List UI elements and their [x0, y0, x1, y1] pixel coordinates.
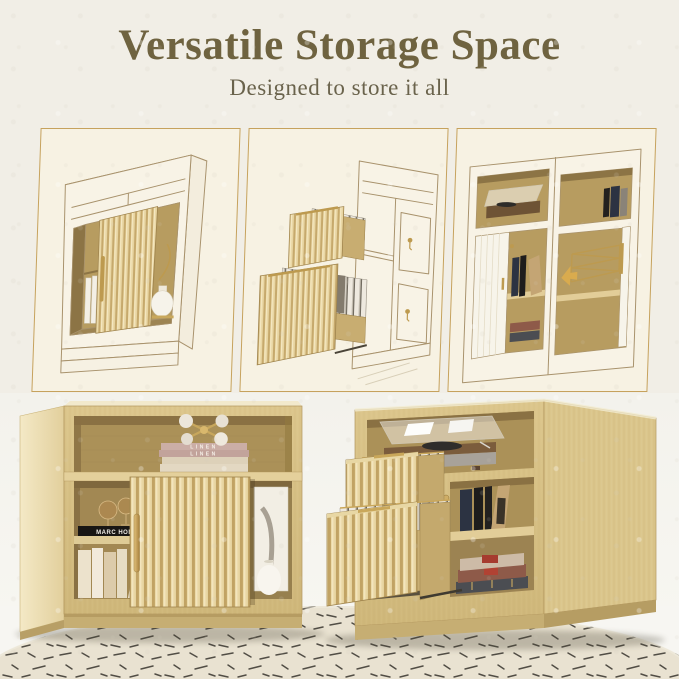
- illustration-sliding-door-cabinet: [32, 129, 239, 391]
- left-unit: [471, 169, 549, 359]
- page-subtitle: Designed to store it all: [0, 75, 679, 101]
- top-drawer: [288, 207, 365, 268]
- right-cabinet: [327, 400, 656, 640]
- book-stack: LINEN LINEN: [159, 443, 249, 472]
- book-spine-label: LINEN: [190, 445, 218, 451]
- top-open-shelf: LINEN LINEN: [74, 414, 292, 472]
- cabinet-outline: [352, 161, 439, 385]
- product-infographic: Versatile Storage Space Designed to stor…: [0, 0, 679, 679]
- page-title: Versatile Storage Space: [0, 22, 679, 69]
- book-spine-label: LINEN: [190, 452, 218, 458]
- left-cabinet-photo: LINEN LINEN: [18, 390, 320, 640]
- feature-panel-sliding-door: [31, 128, 240, 392]
- cabinet-top: [64, 401, 302, 406]
- fluted-sliding-door: [96, 207, 158, 334]
- left-cabinet: LINEN LINEN: [20, 401, 302, 640]
- door-handle: [134, 514, 140, 572]
- feature-panels: [36, 128, 652, 392]
- cabinet-side-panel: [20, 406, 64, 632]
- illustration-file-drawers: [240, 129, 447, 391]
- right-cabinet-photo: [322, 386, 670, 644]
- display-book-label: MARC HOM: [96, 530, 134, 536]
- bottom-drawer-open: [327, 500, 462, 606]
- feature-panel-file-drawers: [239, 128, 448, 392]
- feature-panel-open-shelves: [447, 128, 656, 392]
- right-unit: [555, 168, 633, 355]
- right-shelf-bottom: [450, 535, 534, 597]
- header: Versatile Storage Space Designed to stor…: [0, 22, 679, 101]
- fluted-sliding-door: [130, 477, 255, 607]
- illustration-open-shelves: [448, 129, 655, 391]
